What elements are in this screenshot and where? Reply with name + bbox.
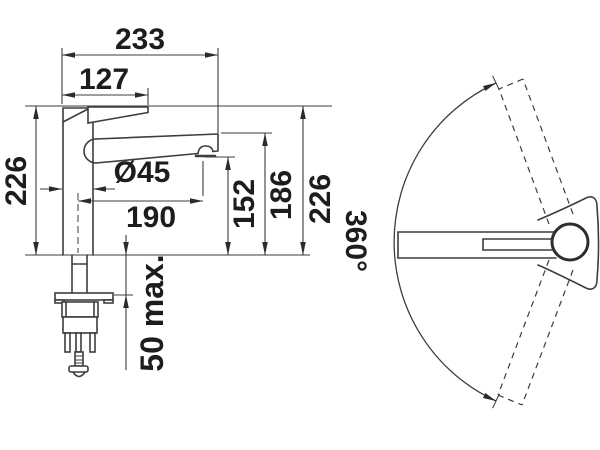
clamp-claw <box>76 333 81 352</box>
clamp-screw <box>69 366 88 372</box>
faucet-technical-drawing: 233 127 226 Ø45 190 <box>0 0 600 450</box>
dim-aerator-reach: 190 <box>78 198 203 234</box>
lever-handle <box>88 107 148 123</box>
side-view: 233 127 226 Ø45 190 <box>0 23 337 377</box>
dim-label-aerator-height: 152 <box>228 179 261 229</box>
dim-height-left: 226 <box>0 106 39 255</box>
dim-label-body-diameter: Ø45 <box>114 156 171 189</box>
clamp-claw <box>90 333 95 352</box>
dim-spout-height: 186 <box>262 133 298 255</box>
dim-handle-reach: 127 <box>62 63 148 98</box>
threaded-stud <box>75 352 83 366</box>
drawing-canvas: 233 127 226 Ø45 190 <box>0 0 600 450</box>
top-view: 360° <box>339 76 599 408</box>
clamp-claw <box>65 333 70 352</box>
mounting-hardware <box>55 255 113 377</box>
dim-aerator-height: 152 <box>225 157 261 255</box>
top-spout <box>398 232 556 258</box>
dim-label-aerator-reach: 190 <box>126 201 176 234</box>
dashed-spout-position-upper <box>499 79 573 224</box>
dashed-spout-position-lower <box>498 260 573 405</box>
dim-label-swivel-angle: 360° <box>339 210 372 272</box>
dim-label-height-left: 226 <box>0 156 33 206</box>
dim-label-max-mount-thickness: 50 max. <box>134 254 170 371</box>
dim-label-height-right: 226 <box>304 174 337 224</box>
dim-label-spout-height: 186 <box>265 170 298 220</box>
body-circle <box>552 224 588 260</box>
dim-reach: 233 <box>62 23 218 58</box>
mounting-socket <box>62 302 98 317</box>
dim-height-right: 226 <box>300 106 337 255</box>
dim-label-reach: 233 <box>115 23 165 56</box>
clamp-bracket <box>63 317 97 333</box>
swivel-arc: 360° <box>339 76 499 408</box>
mounting-flange <box>55 293 113 300</box>
dim-label-handle-reach: 127 <box>79 63 129 96</box>
